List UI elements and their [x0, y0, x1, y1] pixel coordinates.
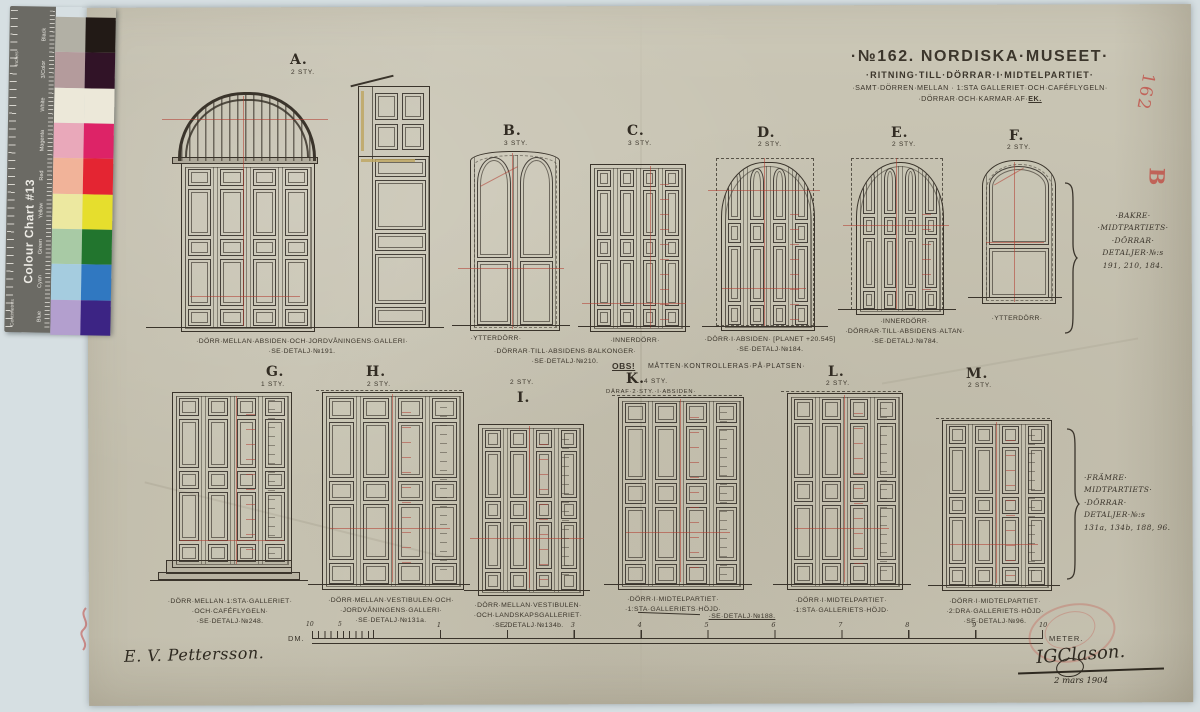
door-panel [363, 422, 388, 478]
sheet-subtitle: ·RITNING·TILL·DÖRRAR·I·MIDTELPARTIET· [830, 70, 1130, 80]
door-m-count: 2 STY. [968, 382, 992, 389]
door-a-elevation [181, 163, 315, 332]
scale-meter-number: 7 [838, 621, 842, 629]
door-panel [822, 505, 841, 561]
door-panel [794, 563, 813, 584]
colour-swatch-full [80, 300, 111, 336]
door-leaf [860, 166, 878, 311]
door-panel [620, 309, 634, 326]
door-panel [179, 492, 199, 541]
colour-swatch-light [55, 17, 86, 53]
door-panel [597, 260, 611, 306]
door-panel [989, 248, 1049, 298]
red-dimension-line [190, 296, 300, 297]
door-d-letter: D. [757, 125, 776, 141]
door-g-count: 1 STY. [261, 381, 285, 388]
door-panel [402, 124, 425, 151]
colour-swatch-light [55, 52, 86, 88]
ground-line [702, 326, 828, 330]
door-panel [485, 451, 501, 498]
caption-line: ·INNERDÖRR· [585, 336, 685, 346]
door-leaf [617, 168, 637, 328]
door-l-letter: L. [828, 364, 845, 380]
scale-meter-number: 1 [437, 621, 441, 629]
door-panel [620, 190, 634, 236]
red-dimension-ticks [539, 430, 548, 580]
colour-chart-row-label: Blue [36, 300, 43, 334]
door-panel [773, 168, 786, 220]
note-line: MIDTPARTIETS· [1084, 484, 1188, 496]
door-panel [220, 239, 243, 256]
colour-chart-row-label: White [40, 88, 47, 122]
dimension-figures [268, 400, 275, 555]
door-panel [949, 517, 966, 564]
door-leaf [507, 428, 529, 592]
door-panel [750, 246, 763, 301]
door-panel [625, 403, 646, 423]
door-panel [375, 233, 426, 251]
door-e-letter: E. [891, 125, 909, 141]
door-panel [597, 170, 611, 187]
colour-swatch-full [83, 159, 114, 195]
colour-swatch-full [85, 53, 116, 89]
door-panel [949, 426, 966, 444]
colour-chart-row-label: Green [38, 229, 45, 263]
caption-line: ·DÖRR·MELLAN·VESTIBULEN·OCH· [308, 596, 474, 606]
caption-line: ·OCH·CAFÉFLYGELN· [148, 607, 312, 617]
door-panel [863, 291, 875, 309]
note-line: ·DÖRRAR· [1082, 235, 1184, 247]
door-panel [905, 168, 917, 214]
door-leaf [622, 401, 649, 586]
door-a-side-section [358, 86, 430, 328]
bakre-note: ·BAKRE· ·MIDTPARTIETS· ·DÖRRAR· DETALJER… [1082, 210, 1184, 272]
door-leaf [360, 396, 391, 586]
colour-chart-row: Yellow [52, 193, 113, 229]
door-panel [253, 309, 276, 326]
door-panel [375, 254, 426, 303]
door-leaf [517, 155, 557, 327]
colour-chart-row: Red [53, 158, 114, 194]
door-panel [510, 451, 526, 498]
door-panel [625, 507, 646, 561]
door-panel [363, 398, 388, 419]
scale-meter-number: 3 [571, 621, 575, 629]
red-dimension-line [986, 242, 1044, 243]
caption-line: ·SE·DETALJ·№784. [840, 337, 970, 347]
door-panel [655, 426, 676, 480]
ground-line [346, 327, 444, 331]
red-dimension-line [236, 396, 237, 564]
door-panel [863, 238, 875, 287]
door-panel [179, 471, 199, 489]
door-panel [375, 180, 426, 229]
door-panel [220, 169, 243, 186]
caption-line: ·DÖRRAR·TILL·ABSIDENS·BALKONGER· [440, 347, 690, 357]
door-panel [794, 481, 813, 502]
door-panel [179, 419, 199, 468]
red-dimension-line [582, 303, 686, 304]
door-e-caption: ·INNERDÖRR· ·DÖRRAR·TILL·ABSIDENS·ALTAN·… [840, 317, 970, 348]
door-leaf [482, 428, 504, 592]
door-panel [520, 261, 554, 325]
door-panel [485, 572, 501, 590]
ground-line [150, 580, 308, 584]
colour-swatch-full [82, 194, 113, 230]
colour-swatch-light [51, 264, 82, 300]
note-line: 131a, 134b, 188, 96. [1084, 522, 1188, 534]
note-line: DETALJER·№:s [1084, 509, 1188, 521]
door-panel [477, 261, 511, 325]
door-leaf [185, 167, 214, 328]
sheet-subtitle-2: ·SAMT·DÖRREN·MELLAN · 1:STA GALLERIET·OC… [826, 83, 1134, 92]
door-panel [949, 497, 966, 515]
door-panel [625, 426, 646, 480]
colour-swatch-light [54, 87, 85, 123]
colour-chart-row: Blue [50, 299, 111, 335]
obs-note-text: MÅTTEN·KONTROLLERAS·PÅ·PLATSEN· [648, 363, 805, 370]
door-b-letter: B. [503, 123, 522, 139]
door-panel [949, 567, 966, 585]
door-panel [773, 246, 786, 301]
red-dimension-ticks [690, 403, 699, 575]
material-note-prefix: ·DÖRRAR·OCH·KARMAR·AF· [918, 94, 1028, 103]
door-panel [329, 422, 354, 478]
colour-chart-row-label: Magenta [39, 123, 46, 157]
door-panel [728, 223, 741, 243]
red-dimension-ticks [922, 200, 931, 300]
colour-chart-ruler: Colour Chart #13 Inches Centimetres [4, 6, 56, 333]
door-leaf [474, 155, 514, 327]
ground-line [773, 584, 911, 588]
scale-bar-fine-ticks [312, 631, 374, 638]
red-dimension-ticks [854, 399, 863, 575]
door-panel [329, 481, 354, 502]
door-panel [220, 309, 243, 326]
door-leaf [819, 397, 844, 586]
door-panel [884, 217, 896, 235]
door-panel [188, 189, 211, 235]
door-panel [655, 483, 676, 503]
section-lower-leaf [372, 157, 429, 327]
door-l-caption: ·DÖRR·I·MIDTELPARTIET· ·1:STA·GALLERIETS… [771, 596, 911, 616]
door-panel [905, 238, 917, 287]
red-dimension-line [243, 96, 244, 326]
door-panel [597, 239, 611, 256]
curly-brace [1062, 182, 1078, 334]
colour-swatch-full [84, 88, 115, 124]
colour-chart-row-label: Yellow [38, 194, 45, 228]
door-panel [905, 291, 917, 309]
colour-chart-row: Magenta [53, 123, 114, 159]
ground-line [578, 326, 690, 330]
door-panel [822, 423, 841, 479]
caption-line: ·DÖRR·MELLAN·ABSIDEN·OCH·JORDVÅNINGENS·G… [162, 337, 442, 347]
red-dimension-line [529, 426, 530, 588]
door-panel [188, 259, 211, 305]
colour-swatch-full [83, 123, 114, 159]
door-panel [510, 522, 526, 569]
caption-line: ·DÖRR·MELLAN·VESTIBULEN· [460, 601, 596, 611]
door-panel [253, 239, 276, 256]
colour-chart-row-label: Red [39, 159, 46, 193]
door-c-caption: ·INNERDÖRR· [585, 336, 685, 346]
door-panel [253, 189, 276, 235]
door-panel [188, 309, 211, 326]
ruler-centimetres-label: Centimetres [9, 299, 15, 326]
door-leaf [205, 396, 231, 564]
red-dimension-line [996, 422, 997, 583]
door-leaf [791, 397, 816, 586]
red-archive-letter: B [1144, 167, 1170, 186]
door-panel [863, 168, 875, 214]
ground-line [838, 309, 956, 313]
door-l-count: 2 STY. [826, 380, 850, 387]
door-panel [285, 239, 308, 256]
door-panel [884, 238, 896, 287]
ground-line [968, 297, 1062, 301]
door-panel [510, 430, 526, 448]
scale-meter-number: 6 [771, 621, 775, 629]
scale-sub-number: 5 [338, 621, 342, 628]
door-panel [620, 239, 634, 256]
door-e-count: 2 STY. [892, 141, 916, 148]
door-panel [520, 157, 554, 258]
door-f-caption: ·YTTERDÖRR· [972, 314, 1062, 324]
ground-line [452, 325, 570, 329]
dimension-figures [880, 399, 887, 575]
caption-line: ·DÖRR·I·MIDTELPARTIET· [771, 596, 911, 606]
door-panel [822, 481, 841, 502]
caption-line: ·DÖRRAR·TILL·ABSIDENS·ALTAN· [840, 327, 970, 337]
note-line: DETALJER·№:s [1082, 247, 1184, 259]
door-panel [884, 168, 896, 214]
colour-chart: Colour Chart #13 Inches Centimetres Blac… [4, 6, 116, 334]
door-panel [402, 93, 425, 120]
door-panel [375, 307, 426, 325]
door-panel [510, 501, 526, 519]
door-panel [728, 246, 741, 301]
colour-swatch-light [52, 229, 83, 265]
door-panel [485, 501, 501, 519]
door-panel [975, 497, 992, 515]
dimension-figures [562, 430, 569, 580]
door-panel [655, 507, 676, 561]
door-panel [208, 492, 228, 541]
door-panel [625, 483, 646, 503]
door-panel [220, 259, 243, 305]
sheet-title: ·№162. NORDISKA·MUSEET· [830, 48, 1130, 66]
red-dimension-line [392, 394, 393, 582]
colour-chart-row: Cyan [51, 264, 112, 300]
signature-date: 2 mars 1904 [1054, 676, 1108, 686]
door-c-elevation [590, 164, 686, 332]
caption-line: ·DÖRR·I·MIDTELPARTIET· [598, 595, 748, 605]
door-panel [822, 563, 841, 584]
red-dimension-line [843, 225, 949, 226]
door-panel [208, 471, 228, 489]
door-m-elevation [942, 420, 1052, 591]
door-panel [375, 124, 398, 151]
door-panel [750, 168, 763, 220]
draughtsman-signature: E. V. Pettersson. [124, 643, 265, 666]
scale-bar-meter-ticks [373, 630, 1045, 638]
door-leaf [946, 424, 969, 587]
door-panel [620, 170, 634, 187]
scale-bar-line [312, 638, 1043, 644]
red-dimension-line [896, 158, 897, 310]
door-panel [220, 189, 243, 235]
door-leaf [326, 396, 357, 586]
ground-line [928, 585, 1060, 589]
red-dimension-line [458, 268, 564, 269]
caption-line: ·DÖRR·I·MIDTELPARTIET· [925, 597, 1065, 607]
ground-line [464, 590, 590, 594]
red-dimension-line [626, 532, 730, 533]
door-panel [285, 259, 308, 305]
door-panel [794, 423, 813, 479]
door-panel [975, 426, 992, 444]
colour-chart-row-label: Black [41, 17, 48, 51]
door-panel [863, 217, 875, 235]
colour-chart-row: Black [55, 17, 116, 53]
red-dimension-ticks [660, 170, 669, 322]
door-panel [794, 399, 813, 420]
dimension-figures [1028, 426, 1035, 576]
dimension-figures [720, 403, 727, 575]
colour-chart-row: White [54, 87, 115, 123]
red-dimension-line [330, 528, 450, 529]
note-line: ·MIDTPARTIETS· [1082, 222, 1184, 234]
red-dimension-ticks [402, 398, 411, 574]
caption-line: ·DÖRR·MELLAN·1:STA·GALLERIET· [148, 597, 312, 607]
door-panel [773, 305, 786, 325]
door-f-elevation [982, 160, 1056, 304]
door-panel [728, 168, 741, 220]
door-panel [620, 260, 634, 306]
door-b-caption: ·YTTERDÖRR· [450, 334, 542, 344]
door-panel [597, 309, 611, 326]
door-leaf [972, 424, 995, 587]
door-panel [773, 223, 786, 243]
door-k-count: 4 STY. [644, 378, 668, 385]
door-i-count: 2 STY. [510, 379, 534, 386]
frame-dashed-line [316, 390, 462, 391]
colour-chart-row: 3/Color [55, 52, 116, 88]
colour-swatch-light [53, 123, 84, 159]
door-panel [884, 291, 896, 309]
frame-dashed-line [612, 395, 742, 396]
frame-dashed-line [781, 391, 901, 392]
door-panel [329, 563, 354, 584]
door-f-letter: F. [1009, 128, 1024, 144]
framre-note: ·FRÄMRE· MIDTPARTIETS· ·DÖRRAR· DETALJER… [1084, 472, 1188, 534]
door-panel [750, 305, 763, 325]
caption-line: ·SE·DETALJ·№191. [162, 347, 442, 357]
colour-swatch-light [52, 193, 83, 229]
sheet-material-note: ·DÖRRAR·OCH·KARMAR·AF·EK. [830, 94, 1130, 103]
red-dimension-line [680, 399, 681, 582]
door-leaf [282, 167, 311, 328]
door-panel [975, 517, 992, 564]
door-d-count: 2 STY. [758, 141, 782, 148]
door-panel [253, 169, 276, 186]
scanned-drawing-sheet: Colour Chart #13 Inches Centimetres Blac… [0, 0, 1200, 712]
scale-sub-number: 10 [306, 621, 314, 628]
scale-bar: 10 5 12345678910 [312, 620, 1052, 652]
door-panel [485, 522, 501, 569]
door-panel [655, 403, 676, 423]
door-c-letter: C. [627, 123, 645, 139]
door-panel [949, 447, 966, 494]
door-b-elevation [470, 151, 560, 331]
door-g-plinth-step [158, 572, 300, 580]
colour-swatch-light [50, 299, 81, 335]
dimension-figures [440, 398, 447, 574]
door-panel [655, 564, 676, 584]
door-g-letter: G. [266, 364, 284, 380]
colour-chart-row-label: Cyan [37, 264, 44, 298]
scale-meter-number: 2 [504, 621, 508, 629]
door-panel [750, 223, 763, 243]
colour-swatch-full [81, 265, 112, 301]
obs-note-bold: OBS! [612, 361, 635, 371]
door-panel [975, 567, 992, 585]
door-panel [510, 572, 526, 590]
scale-meter-number: 8 [905, 621, 909, 629]
colour-chart-row: Green [52, 229, 113, 265]
door-panel [905, 217, 917, 235]
door-panel [285, 309, 308, 326]
door-panel [485, 430, 501, 448]
wash-tint [361, 159, 415, 162]
door-leaf [250, 167, 279, 328]
door-d-elevation [721, 162, 815, 331]
door-panel [188, 239, 211, 256]
red-dimension-line [950, 544, 1038, 545]
door-panel [625, 564, 646, 584]
scale-meter-number: 5 [705, 621, 709, 629]
door-leaf [902, 166, 920, 311]
door-panel [329, 504, 354, 560]
note-line: ·DÖRRAR· [1084, 497, 1188, 509]
caption-line: ·SE·DETALJ·№248. [148, 617, 312, 627]
frame-dashed-line [936, 418, 1050, 419]
door-panel [179, 398, 199, 416]
red-dimension-ticks [790, 200, 799, 320]
caption-line: ·DÖRR·I·ABSIDEN· [PLANET +20.545] [690, 335, 850, 345]
colour-chart-title: Colour Chart #13 [21, 179, 37, 284]
section-upper-panels [359, 87, 429, 157]
red-dimension-line [512, 153, 513, 329]
red-dimension-ticks [1006, 426, 1015, 576]
door-d-caption: ·DÖRR·I·ABSIDEN· [PLANET +20.545] ·SE·DE… [690, 335, 850, 355]
caption-line: ·INNERDÖRR· [840, 317, 970, 327]
door-panel [363, 481, 388, 502]
door-g-caption: ·DÖRR·MELLAN·1:STA·GALLERIET· ·OCH·CAFÉF… [148, 597, 312, 628]
red-scribble-mark [74, 606, 96, 652]
door-b-count: 3 STY. [504, 140, 528, 147]
door-a-count: 2 STY. [291, 69, 315, 76]
door-panel [253, 259, 276, 305]
caption-line: ·YTTERDÖRR· [972, 314, 1062, 324]
caption-line: ·YTTERDÖRR· [450, 334, 542, 344]
door-m-letter: M. [966, 366, 988, 382]
door-panel [188, 169, 211, 186]
door-f-count: 2 STY. [1007, 144, 1031, 151]
ruler-inches-label: Inches [14, 51, 20, 66]
door-panel [597, 190, 611, 236]
